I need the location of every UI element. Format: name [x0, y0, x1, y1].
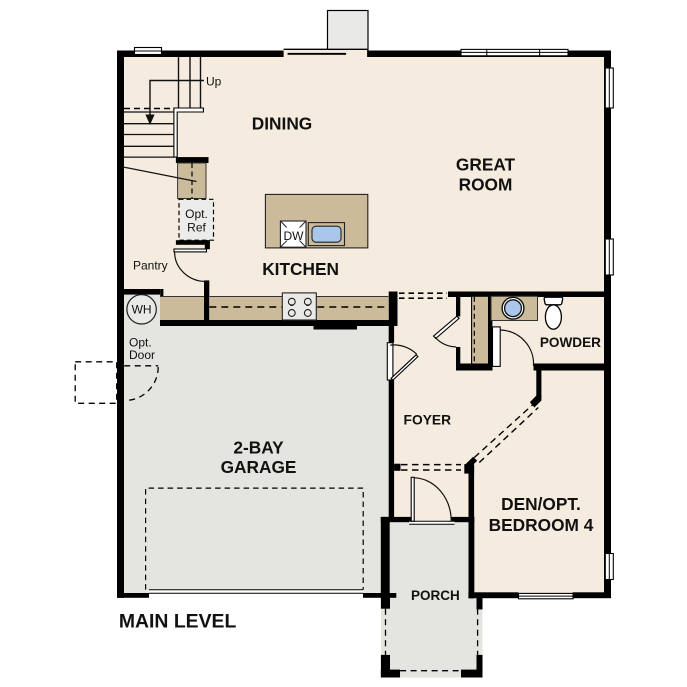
svg-text:MAIN LEVEL: MAIN LEVEL: [119, 610, 237, 632]
svg-text:Pantry: Pantry: [133, 258, 168, 272]
svg-text:GREAT: GREAT: [456, 155, 516, 175]
svg-text:WH: WH: [132, 302, 152, 316]
svg-text:FOYER: FOYER: [404, 412, 452, 427]
svg-text:BEDROOM 4: BEDROOM 4: [489, 515, 594, 535]
svg-text:PORCH: PORCH: [411, 588, 460, 603]
svg-text:Opt.: Opt.: [185, 207, 208, 221]
svg-text:Up: Up: [206, 75, 222, 89]
svg-text:DEN/OPT.: DEN/OPT.: [501, 494, 581, 514]
svg-text:POWDER: POWDER: [540, 335, 601, 350]
svg-text:2-BAY: 2-BAY: [233, 438, 284, 458]
svg-text:Ref: Ref: [187, 221, 206, 235]
svg-text:DINING: DINING: [252, 114, 312, 134]
svg-text:GARAGE: GARAGE: [221, 457, 297, 477]
svg-text:KITCHEN: KITCHEN: [262, 259, 339, 279]
svg-text:ROOM: ROOM: [459, 174, 513, 194]
svg-text:DW: DW: [284, 229, 305, 243]
svg-text:Door: Door: [129, 348, 155, 362]
